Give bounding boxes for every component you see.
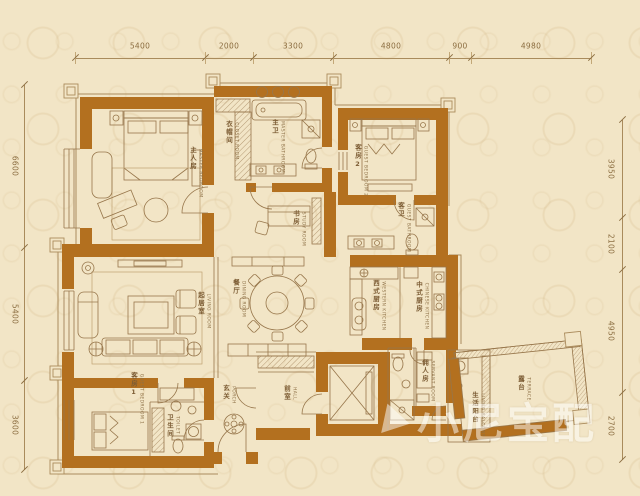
floorplan-canvas: 5400 2000 3300 4800 900 4980 6600 5400 3… (0, 0, 640, 496)
dim-right-1: 3950 (607, 159, 616, 179)
closet-wardrobes (216, 99, 251, 180)
master-bathroom-fixtures (250, 87, 320, 177)
guest-bathroom-fixtures (348, 208, 434, 255)
dining-table (228, 257, 314, 356)
watermark-logo-icon (381, 403, 413, 438)
elevator (330, 366, 374, 420)
watermark-text: 小尼宝配 (417, 390, 597, 451)
dim-right-3: 4950 (607, 321, 616, 341)
dim-top-5: 900 (452, 42, 467, 51)
dim-top-3: 3300 (283, 42, 303, 51)
dim-top-4: 4800 (381, 42, 401, 51)
dim-top-6: 4980 (521, 42, 541, 51)
guest-bed-1 (92, 388, 194, 450)
toilet-fixtures (152, 406, 201, 453)
dim-left-3: 3600 (11, 415, 20, 435)
dim-right-2: 2100 (607, 234, 616, 254)
master-bed (92, 111, 202, 240)
dim-left-2: 5400 (11, 304, 20, 324)
chinese-kitchen-counters (404, 267, 446, 338)
hall-cabinet (258, 356, 314, 372)
living-room-furniture (78, 260, 202, 364)
guest-bed-2 (350, 119, 429, 191)
dim-left-1: 6600 (11, 156, 20, 176)
watermark: 小尼宝配 (384, 390, 597, 451)
western-kitchen-counters (350, 267, 398, 335)
study-furniture (255, 198, 321, 244)
dim-top-1: 5400 (130, 42, 150, 51)
dim-right-4: 2700 (607, 416, 616, 436)
dim-top-2: 2000 (219, 42, 239, 51)
